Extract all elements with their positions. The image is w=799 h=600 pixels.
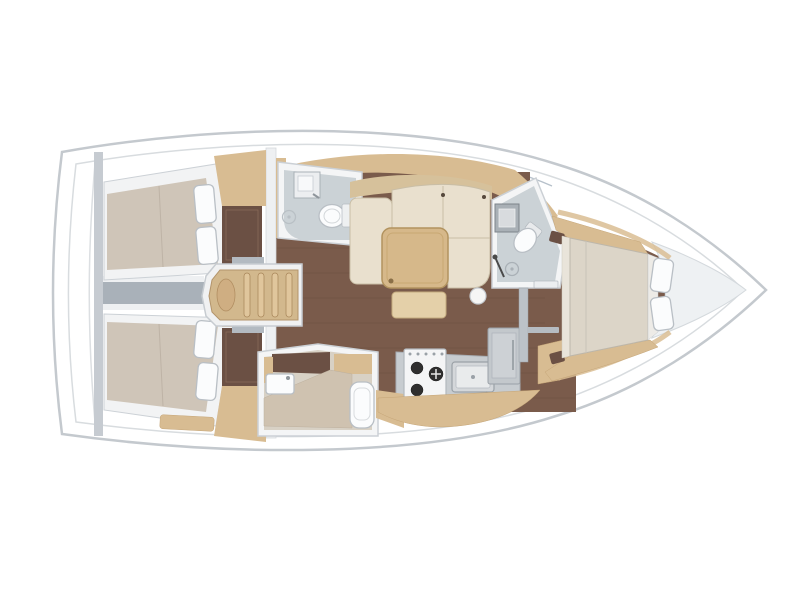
stove-knob bbox=[433, 353, 436, 356]
pillow bbox=[193, 320, 216, 359]
salon-bulkhead-upper bbox=[266, 148, 276, 266]
pillow bbox=[195, 362, 218, 401]
burner bbox=[411, 384, 423, 396]
bed-mattress bbox=[570, 238, 648, 356]
stove-knob bbox=[441, 353, 444, 356]
faucet-icon bbox=[286, 376, 290, 380]
pillow bbox=[650, 258, 674, 293]
coffee-table bbox=[392, 292, 446, 318]
shower-drain-dot bbox=[510, 267, 513, 270]
drain-dot bbox=[471, 375, 475, 379]
burner bbox=[411, 362, 423, 374]
steps-nose bbox=[217, 279, 235, 311]
footboard bbox=[562, 236, 570, 358]
tuft-button bbox=[482, 195, 486, 199]
stove-knob bbox=[425, 353, 428, 356]
stern-bulkhead bbox=[94, 152, 103, 436]
toilet bbox=[319, 205, 345, 228]
stool bbox=[470, 288, 486, 304]
mid-head bbox=[258, 344, 378, 436]
corridor-sole bbox=[103, 281, 204, 305]
step-tread bbox=[272, 273, 278, 317]
sink-basin bbox=[298, 176, 313, 191]
stove-knob bbox=[417, 353, 420, 356]
pillow bbox=[193, 184, 216, 224]
companionway bbox=[202, 257, 302, 333]
yacht-floorplan-canvas bbox=[0, 0, 799, 600]
pillow bbox=[650, 296, 674, 331]
mast-post bbox=[519, 288, 528, 362]
locker-niche bbox=[222, 328, 262, 386]
shower-wand-head bbox=[493, 255, 498, 260]
wardrobe-top bbox=[214, 150, 266, 206]
sink bbox=[266, 374, 294, 394]
cabin-door bbox=[527, 327, 559, 333]
step-tread bbox=[258, 273, 264, 317]
yacht-floorplan bbox=[0, 0, 799, 600]
table-leg bbox=[389, 279, 394, 284]
corridor-wall bbox=[103, 304, 204, 310]
sofa-chaise bbox=[448, 238, 490, 288]
aft-head bbox=[278, 162, 362, 246]
foot-board bbox=[160, 415, 215, 432]
cabinet bbox=[334, 354, 372, 374]
pillow bbox=[195, 226, 218, 265]
step-tread bbox=[286, 273, 292, 317]
step-tread bbox=[244, 273, 250, 317]
stove-knob bbox=[409, 353, 412, 356]
shower-drain-dot bbox=[287, 215, 290, 218]
sink-basin bbox=[499, 209, 515, 227]
head-door bbox=[534, 281, 558, 288]
tuft-button bbox=[441, 193, 445, 197]
vanity-shelf bbox=[272, 352, 330, 374]
locker-niche bbox=[222, 206, 262, 264]
